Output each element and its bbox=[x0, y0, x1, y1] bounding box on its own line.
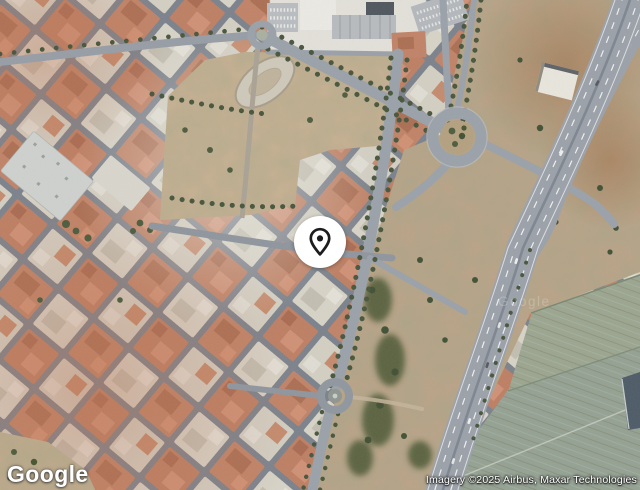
roundabout-large bbox=[427, 107, 487, 167]
map-attribution: Imagery ©2025 Airbus, Maxar Technologies bbox=[426, 474, 637, 486]
map-viewport[interactable]: Google Google Imagery ©2025 Airbus, Maxa… bbox=[0, 0, 640, 490]
map-pin-marker[interactable] bbox=[294, 216, 346, 268]
location-pin-icon bbox=[305, 226, 335, 258]
roundabout-small bbox=[251, 24, 273, 46]
google-watermark: Google bbox=[498, 294, 551, 309]
google-logo[interactable]: Google bbox=[7, 461, 89, 488]
